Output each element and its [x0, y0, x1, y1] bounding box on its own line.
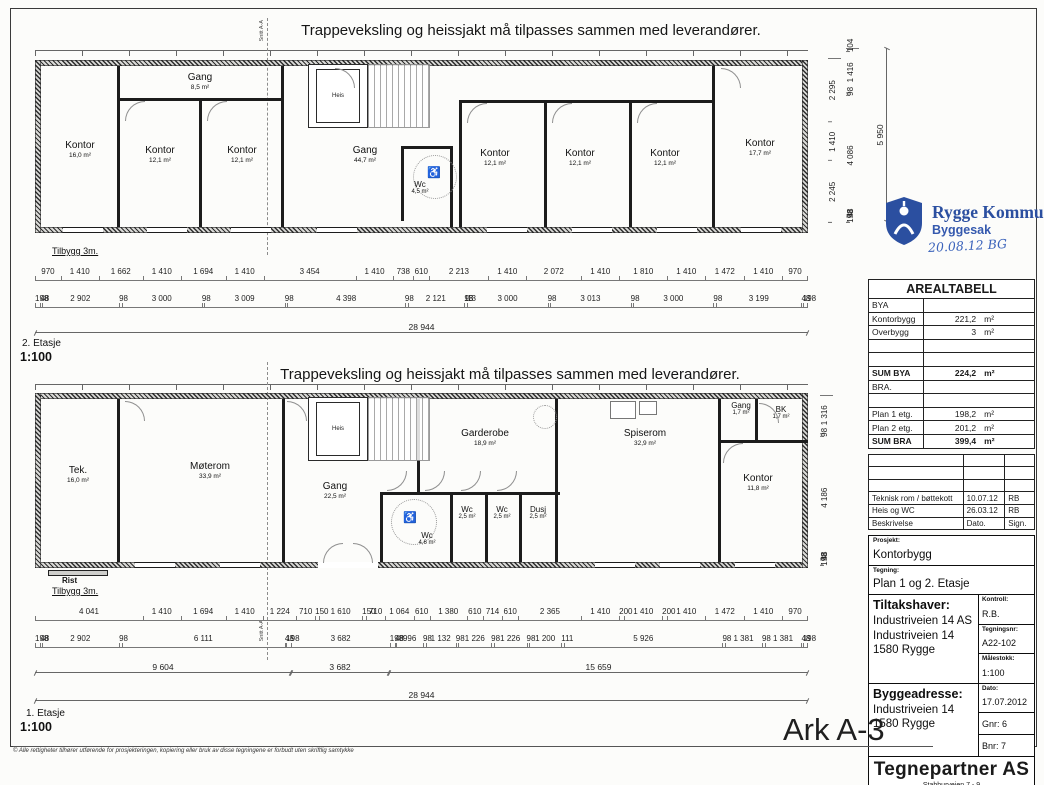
table-row: Plan 2 etg.201,2m² [869, 421, 1035, 435]
dim-part-plan1-b: 3 682 [291, 672, 389, 673]
dim-part-plan1-a: 9 604 [35, 672, 291, 673]
rygge-kommune-stamp: Rygge Kommune Byggesak 20.08.12 BG [884, 196, 924, 251]
door-arc [387, 471, 407, 491]
room-label: Gang44,7 m² [325, 145, 405, 164]
wc-wall [401, 146, 453, 149]
room-label: Gang22,5 m² [290, 481, 380, 500]
window [63, 227, 103, 233]
scale-label-plan2: 1:100 [20, 350, 52, 364]
window [487, 227, 527, 233]
areal-table: AREALTABELL BYAKontorbygg221,2m²Overbygg… [868, 279, 1035, 449]
table-row [869, 479, 1035, 492]
wall-right [802, 393, 808, 568]
window [147, 227, 187, 233]
table-row [869, 339, 1035, 353]
table-row [869, 353, 1035, 367]
note-bottom: Trappeveksling og heissjakt må tilpasses… [280, 366, 740, 383]
corridor-wall [459, 100, 715, 103]
room-label: Kontor12,1 m² [125, 145, 195, 164]
areal-table-title: AREALTABELL [869, 280, 1035, 299]
tegning-value: Plan 1 og 2. Etasje [873, 578, 970, 590]
copyright-note: © Alle rettigheter tilhører utførende fo… [13, 746, 933, 754]
door-arc [497, 471, 517, 491]
wall-left [35, 60, 41, 233]
drawing-sheet: Trappeveksling og heissjakt må tilpasses… [0, 0, 1044, 785]
dim-chain-plan2-row2: 198482 902983 000983 009984 398982 12113… [35, 294, 808, 308]
table-row: Overbygg3m² [869, 326, 1035, 340]
room-label: Møterom33,9 m² [160, 461, 260, 480]
kitchen-fixture [639, 401, 657, 415]
tick-line-plan2 [35, 50, 808, 56]
room-label: Spiserom32,9 m² [595, 428, 695, 447]
table-row: BRA. [869, 380, 1035, 394]
floor-plan-2-etasje: Heis ♿ Kontor16,0 m² Gang8,5 m² Kontor12… [35, 60, 808, 233]
wall-right [802, 60, 808, 233]
window [220, 562, 260, 568]
room-label: Garderobe18,9 m² [435, 428, 535, 447]
rist-label: Rist [62, 576, 77, 585]
scale-label-plan1: 1:100 [20, 720, 52, 734]
partition [117, 399, 120, 562]
stamp-dept: Byggesak [932, 223, 991, 237]
window [735, 562, 775, 568]
prosjekt-section: Prosjekt: Kontorbygg [869, 536, 1034, 566]
revision-table: Teknisk rom / bøttekott10.07.12RBHeis og… [868, 454, 1035, 531]
wall-bottom [35, 562, 808, 568]
table-row [869, 394, 1035, 408]
table-row: SUM BRA399,4m² [869, 434, 1035, 448]
table-row: BeskrivelseDato.Sign. [869, 517, 1035, 530]
window [231, 227, 271, 233]
malestokk-cell: Målestokk: 1:100 [979, 654, 1034, 683]
firm-name: Tegnepartner AS [871, 759, 1032, 781]
partition [199, 98, 202, 227]
vdim-chain-plan2-outer: 1041 416984 08648198 [846, 48, 859, 223]
window [595, 562, 635, 568]
grate-bar [48, 570, 108, 576]
room-label: Kontor12,1 m² [460, 148, 530, 167]
door-arc [207, 101, 227, 121]
room-label: Kontor12,1 m² [207, 145, 277, 164]
door-arc [467, 103, 487, 123]
room-label: Dusj2,5 m² [519, 505, 557, 521]
section-marker-label: Snitt A-A [259, 20, 265, 41]
partition [117, 66, 120, 227]
floor-plan-1-etasje: Heis ♿ Tek.16,0 m² Møterom33,9 m² Gang22… [35, 393, 808, 568]
tiltakshaver-section: Tiltakshaver: Industriveien 14 AS Indust… [869, 595, 1034, 684]
window [135, 562, 175, 568]
door-arc [637, 103, 657, 123]
wheelchair-icon: ♿ [427, 168, 441, 179]
door-arc [287, 401, 307, 421]
partition [712, 66, 715, 227]
floor-label-plan2: 2. Etasje [22, 338, 61, 349]
stamp-name: Rygge Kommune [932, 202, 1044, 223]
table-row: Plan 1 etg.198,2m² [869, 407, 1035, 421]
door-arc [723, 443, 743, 463]
room-label: BK1,7 m² [763, 405, 799, 421]
room-label: Gang1,7 m² [723, 401, 759, 417]
title-block-column: AREALTABELL BYAKontorbygg221,2m²Overbygg… [868, 279, 1035, 785]
firm-block: Tegnepartner AS Stabburveien 7 - 9 1617 … [869, 757, 1034, 785]
fixture-circle [533, 405, 557, 429]
wc-wall [380, 492, 560, 495]
partition [281, 66, 284, 227]
room-label: Tek.16,0 m² [43, 465, 113, 484]
elevator-shaft: Heis [308, 397, 368, 461]
table-row: Kontorbygg221,2m² [869, 312, 1035, 326]
room-label: Kontor11,8 m² [723, 473, 793, 492]
wc-wall [519, 492, 522, 562]
window [657, 227, 697, 233]
rygge-shield-icon [884, 196, 924, 246]
vdim-chain-plan2-inner: 2 2951 4102 245 [828, 58, 841, 223]
dim-total-plan1: 28 944 [35, 700, 808, 701]
kontroll-cell: Kontroll: R.B. [979, 595, 1034, 625]
entrance-door-arc [323, 543, 343, 563]
door-arc [461, 471, 481, 491]
room-label: Wc4,6 m² [407, 531, 447, 547]
vdim-chain-plan1: 1 316984 18648198 [820, 395, 833, 566]
sheet-number: Ark A-3 [783, 712, 885, 748]
wc-wall [380, 492, 383, 562]
room-label: Wc2,5 m² [484, 505, 520, 521]
door-arc [425, 471, 445, 491]
tick-line-plan1 [35, 384, 808, 390]
wheelchair-icon: ♿ [403, 513, 417, 524]
window [317, 227, 357, 233]
staircase [368, 397, 430, 461]
table-row [869, 467, 1035, 480]
dato-cell: Dato: 17.07.2012 [979, 684, 1034, 714]
kitchen-fixture [610, 401, 636, 419]
partition [718, 440, 808, 443]
wall-bottom [35, 227, 808, 233]
staircase [368, 64, 430, 128]
floor-label-plan1: 1. Etasje [26, 708, 65, 719]
door-arc [125, 401, 145, 421]
wc-wall [450, 492, 453, 562]
dim-chain-plan2-row1: 9701 4101 6621 4101 6941 4103 4541 41073… [35, 267, 808, 281]
table-row: Teknisk rom / bøttekott10.07.12RB [869, 492, 1035, 505]
room-label: Kontor12,1 m² [545, 148, 615, 167]
window [572, 227, 612, 233]
dim-chain-plan1-row2: 198482 902986 111481983 68219848996981 1… [35, 634, 808, 648]
tilbygg-label-plan2: Tilbygg 3m. [52, 246, 98, 256]
room-label: Kontor12,1 m² [630, 148, 700, 167]
dim-part-plan1-c: 15 659 [389, 672, 808, 673]
table-row [869, 454, 1035, 467]
room-label: Gang8,5 m² [155, 72, 245, 91]
gnr-cell: Gnr: 6 [979, 713, 1034, 735]
dim-total-plan2: 28 944 [35, 332, 808, 333]
tilbygg-label-plan1: Tilbygg 3m. [52, 586, 98, 596]
entrance-door-arc [353, 543, 373, 563]
door-arc [125, 101, 145, 121]
partition [718, 399, 721, 562]
window [660, 562, 700, 568]
room-label: Kontor16,0 m² [45, 140, 115, 159]
tegningsnr-cell: Tegningsnr: A22-102 [979, 625, 1034, 655]
note-top: Trappeveksling og heissjakt må tilpasses… [301, 22, 761, 39]
window [741, 227, 781, 233]
table-row: Heis og WC26.03.12RB [869, 504, 1035, 517]
table-row: SUM BYA224,2m² [869, 366, 1035, 380]
partition [282, 399, 285, 562]
wall-left [35, 393, 41, 568]
room-label: Kontor17,7 m² [725, 138, 795, 157]
table-row: BYA [869, 299, 1035, 313]
dim-chain-plan1-row1: 4 0411 4101 6941 4101 2247101501 6101507… [35, 607, 808, 621]
door-arc [552, 103, 572, 123]
tegning-section: Tegning: Plan 1 og 2. Etasje [869, 566, 1034, 596]
room-label: Wc4,5 m² [403, 180, 437, 196]
room-label: Wc2,5 m² [449, 505, 485, 521]
elevator-label: Heis [309, 398, 367, 460]
prosjekt-value: Kontorbygg [873, 549, 932, 561]
bnr-cell: Bnr: 7 [979, 735, 1034, 756]
wc-wall [485, 492, 488, 562]
door-arc [721, 68, 741, 88]
partition [555, 399, 558, 562]
